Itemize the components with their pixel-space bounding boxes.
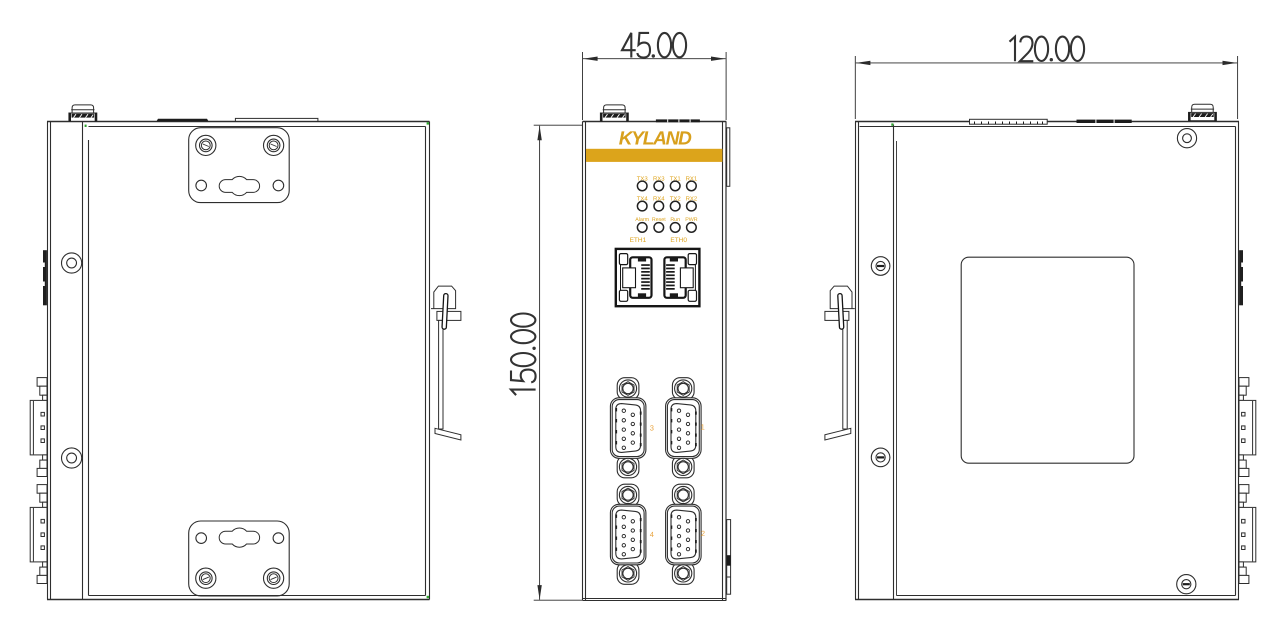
svg-text:2: 2	[701, 529, 705, 538]
svg-text:ETH1: ETH1	[630, 237, 647, 244]
svg-text:4: 4	[650, 530, 654, 539]
svg-text:ETH0: ETH0	[670, 237, 687, 244]
svg-text:3: 3	[650, 423, 654, 432]
svg-text:KYLAND: KYLAND	[619, 129, 692, 150]
svg-text:1: 1	[701, 422, 705, 431]
